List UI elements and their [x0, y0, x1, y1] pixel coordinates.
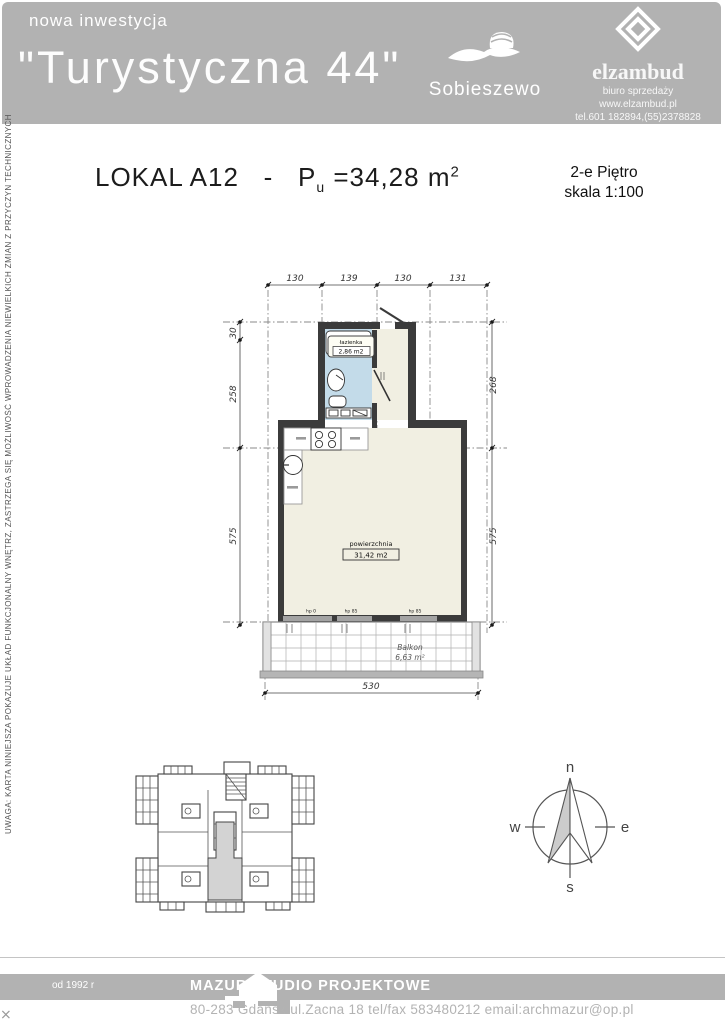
floor-scale-block: 2-e Piętro skala 1:100 [538, 163, 670, 203]
compass-rose: n w e s [505, 758, 635, 896]
header-banner: nowa inwestycja "Turystyczna 44" Sobiesz… [2, 2, 721, 124]
bathroom-area: 2,86 m2 [339, 349, 364, 356]
floor-plan: 130 139 130 131 30 258 575 26 [175, 258, 535, 733]
flyer-page: nowa inwestycja "Turystyczna 44" Sobiesz… [0, 0, 725, 1024]
toilet-icon [329, 396, 346, 407]
balcony-rail-right [472, 622, 480, 673]
compass-e: e [621, 819, 629, 836]
key-plan [130, 760, 320, 930]
studio-name: MAZUR STUDIO PROJEKTOWE [190, 978, 431, 994]
dimension-left: 30 258 575 [229, 319, 243, 628]
area-value: =34,28 m [333, 162, 450, 192]
balcony-name: Balkon [397, 643, 423, 652]
crop-mark: ⨯ [0, 1006, 12, 1023]
wave-cap-icon [440, 28, 530, 72]
dim-left-3: 575 [229, 527, 239, 544]
company-name: elzambud [559, 59, 717, 85]
dim-bottom-530: 530 [362, 682, 379, 692]
floor-label: 2-e Piętro [538, 163, 670, 183]
dim-top-2: 139 [340, 274, 357, 284]
area-unit-sup: 2 [450, 163, 459, 180]
area-symbol: P [298, 162, 316, 192]
compass-needle-east-half [570, 778, 592, 863]
footer-since: od 1992 r [52, 980, 94, 991]
scale-label: skala 1:100 [538, 183, 670, 203]
sill-label-2: hp 85 [345, 609, 358, 615]
dimension-right: 268 575 [489, 319, 499, 628]
dim-top-1: 130 [286, 274, 303, 284]
project-title: "Turystyczna 44" [18, 42, 401, 94]
unit-number: LOKAL A12 [95, 162, 239, 192]
main-room-floor [284, 428, 461, 615]
footer-divider [0, 957, 725, 958]
area-symbol-sub: u [316, 179, 325, 195]
studio-address: 80-283 Gdańsk ul.Zacna 18 tel/fax 583480… [190, 1002, 634, 1017]
company-block: elzambud biuro sprzedaży www.elzambud.pl… [559, 6, 717, 124]
stove-icon [311, 428, 341, 450]
company-dept: biuro sprzedaży [559, 85, 717, 98]
balcony-rail-left [263, 622, 271, 673]
company-website: www.elzambud.pl [559, 98, 717, 111]
window [337, 616, 372, 621]
header-tagline: nowa inwestycja [29, 11, 168, 31]
elzambud-diamond-icon [615, 6, 661, 52]
dim-left-2: 258 [229, 385, 239, 402]
sill-label-3: hp 85 [409, 609, 422, 615]
bathroom-name: łazienka [340, 340, 363, 346]
compass-needle-west-half [548, 778, 570, 863]
balcony: Balkon 6,63 m² [260, 622, 483, 678]
dim-right-2: 575 [489, 527, 499, 544]
resort-logo: Sobieszewo [420, 28, 550, 101]
resort-label: Sobieszewo [420, 79, 550, 101]
balcony-rail-front [260, 671, 483, 678]
compass-n: n [566, 759, 574, 776]
balcony-area: 6,63 m² [395, 653, 424, 662]
unit-title: LOKAL A12 - Pu =34,28 m2 [95, 162, 460, 195]
window [283, 616, 332, 621]
dim-left-1: 30 [229, 327, 239, 339]
dim-right-1: 268 [489, 376, 499, 393]
window [400, 616, 437, 621]
dimension-bottom: 530 [262, 682, 481, 696]
room-name: powierzchnia [350, 540, 393, 548]
room-area: 31,42 m2 [354, 552, 388, 560]
sink-icon [328, 369, 345, 391]
compass-s: s [566, 879, 574, 896]
title-dash: - [264, 162, 274, 192]
compass-w: w [509, 819, 521, 836]
dim-top-3: 130 [394, 274, 411, 284]
sill-label-1: hp 0 [306, 609, 316, 615]
dim-top-4: 131 [449, 274, 466, 284]
company-phone: tel.601 182894,(55)2378828 [559, 111, 717, 124]
disclaimer-note: UWAGA: KARTA NINIEJSZA POKAZUJE UKŁAD FU… [4, 198, 20, 834]
dimension-top: 130 139 130 131 [265, 274, 490, 288]
